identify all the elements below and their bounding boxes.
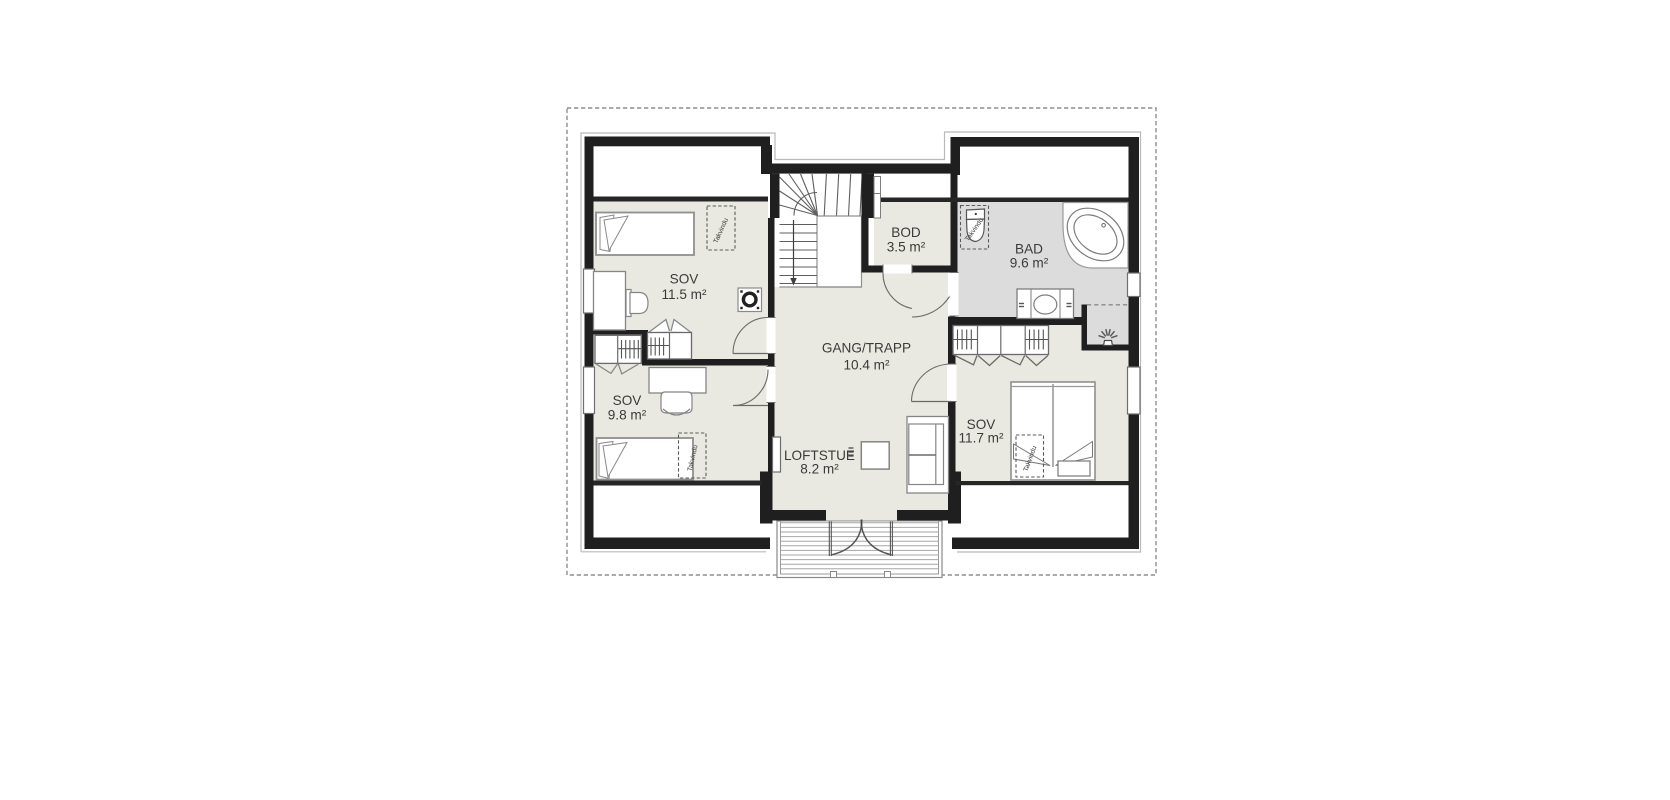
svg-text:BAD: BAD [1015, 242, 1043, 257]
svg-text:8.2 m²: 8.2 m² [800, 462, 839, 477]
svg-text:SOV: SOV [613, 393, 642, 408]
svg-text:BOD: BOD [891, 225, 921, 240]
svg-text:10.4 m²: 10.4 m² [843, 358, 890, 373]
svg-text:3.5 m²: 3.5 m² [887, 240, 926, 255]
svg-text:SOV: SOV [670, 272, 699, 287]
svg-text:GANG/TRAPP: GANG/TRAPP [822, 341, 911, 356]
svg-text:11.5 m²: 11.5 m² [661, 287, 707, 302]
svg-text:11.7 m²: 11.7 m² [958, 431, 1004, 446]
svg-text:9.8 m²: 9.8 m² [608, 408, 647, 423]
svg-text:9.6 m²: 9.6 m² [1010, 256, 1049, 271]
